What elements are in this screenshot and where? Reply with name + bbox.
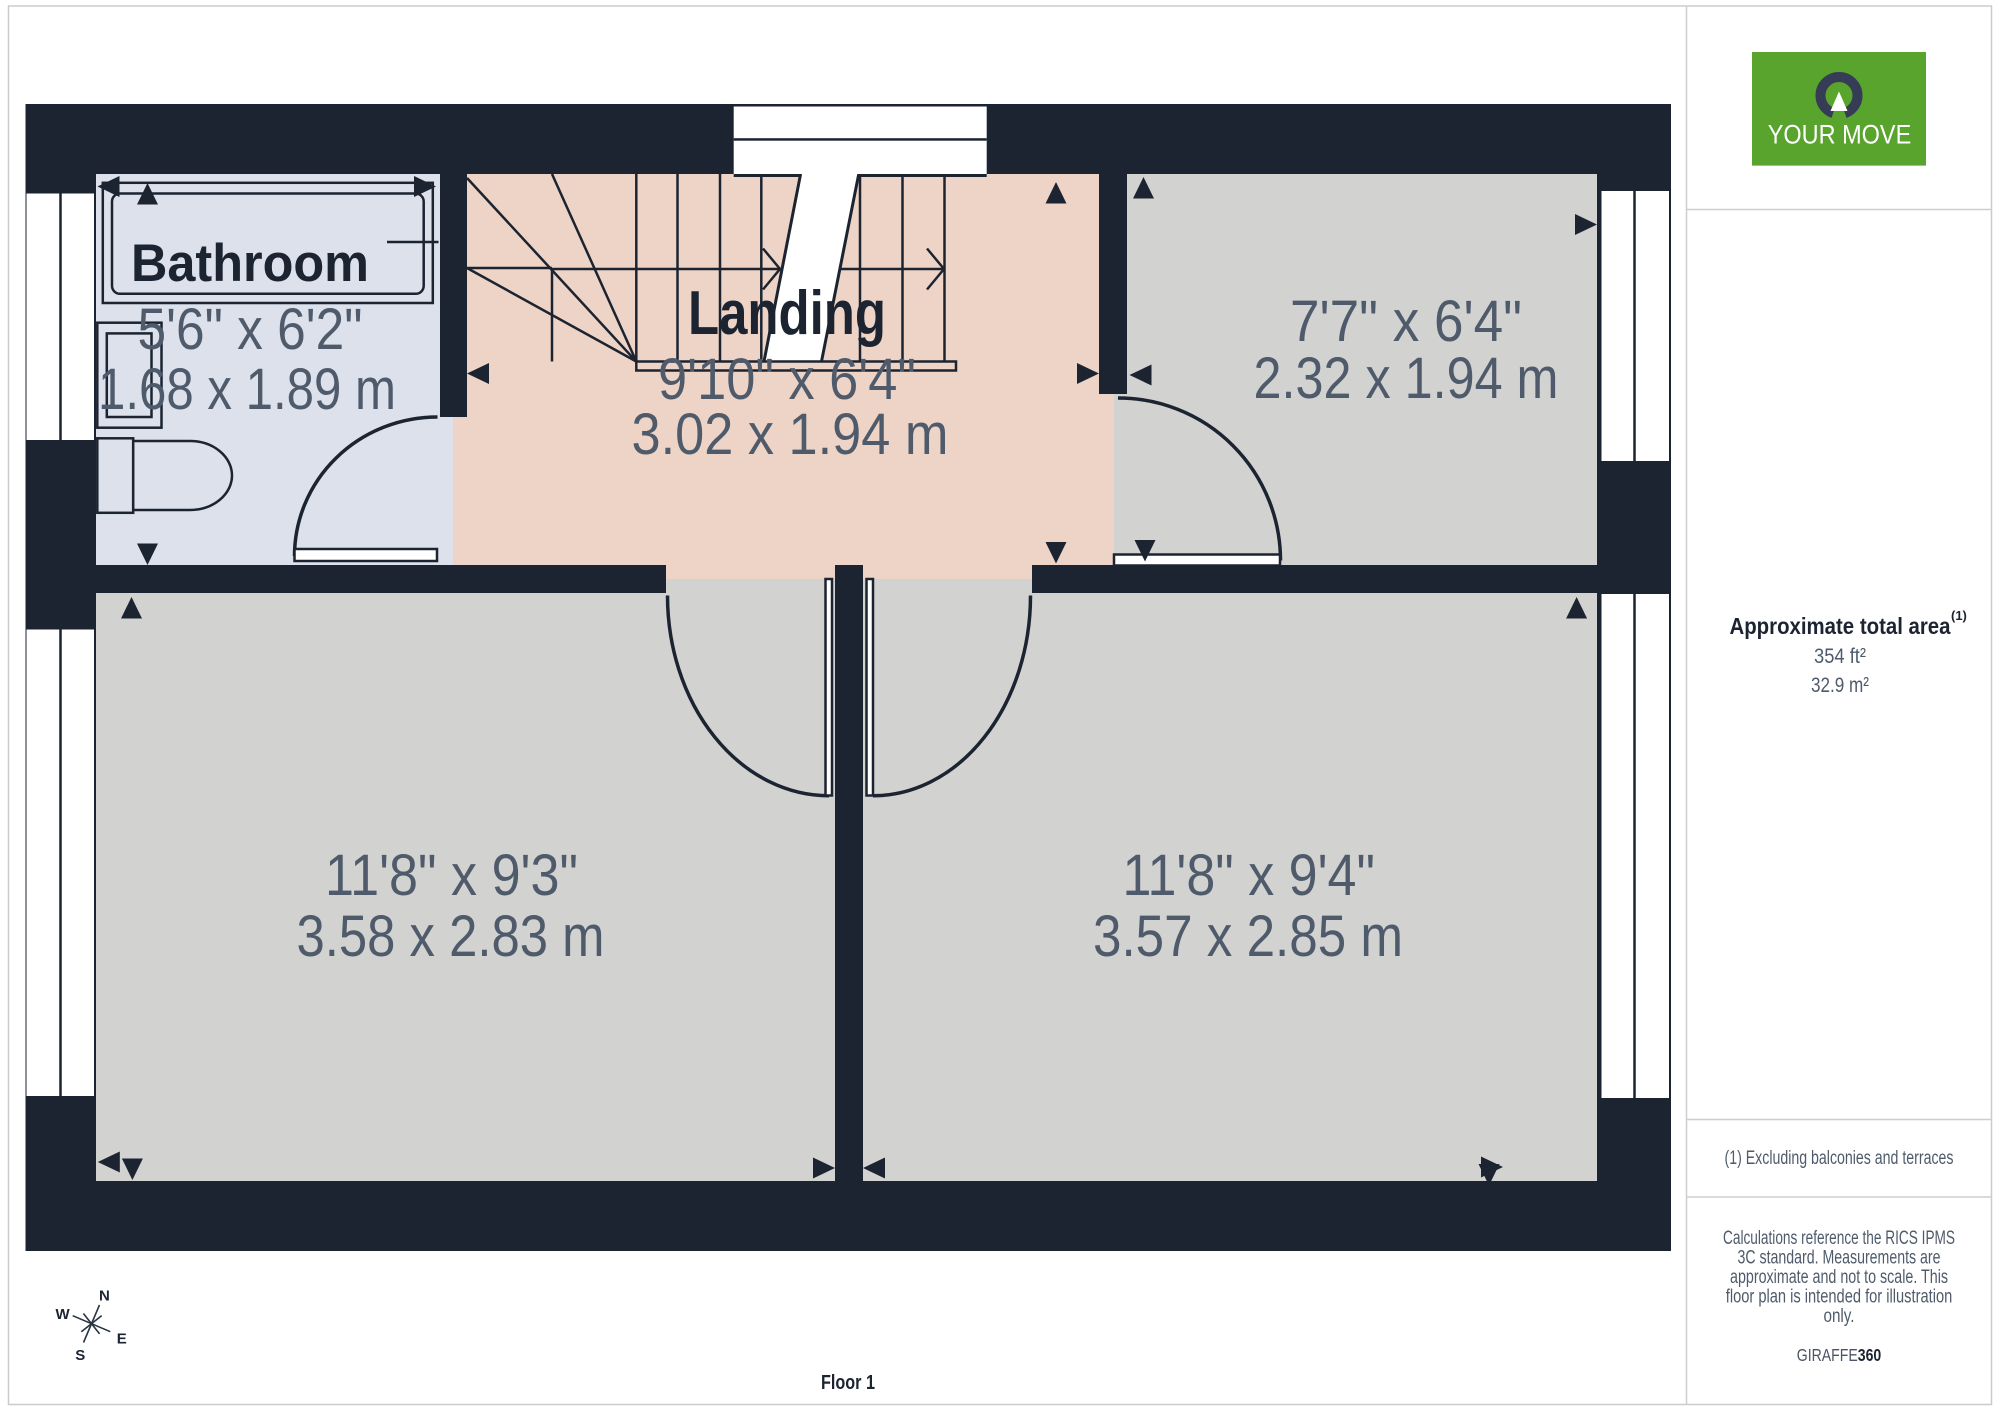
svg-text:only.: only. (1824, 1306, 1855, 1327)
svg-text:11'8" x 9'4": 11'8" x 9'4" (1122, 843, 1375, 908)
svg-text:7'7" x 6'4": 7'7" x 6'4" (1290, 289, 1522, 354)
svg-text:354 ft²: 354 ft² (1814, 645, 1866, 668)
svg-text:(1) Excluding balconies and te: (1) Excluding balconies and terraces (1725, 1148, 1954, 1169)
svg-text:YOUR MOVE: YOUR MOVE (1768, 120, 1912, 150)
svg-text:S: S (75, 1347, 85, 1364)
svg-text:3.58 x 2.83 m: 3.58 x 2.83 m (297, 904, 605, 969)
svg-text:11'8" x 9'3": 11'8" x 9'3" (325, 843, 578, 908)
svg-text:5'6" x 6'2": 5'6" x 6'2" (138, 297, 363, 362)
svg-text:3.02 x 1.94 m: 3.02 x 1.94 m (632, 402, 949, 467)
svg-text:Approximate total area: Approximate total area (1730, 613, 1951, 639)
svg-text:approximate and not to scale.: approximate and not to scale. This (1730, 1267, 1948, 1288)
svg-text:2.32 x 1.94 m: 2.32 x 1.94 m (1254, 346, 1559, 411)
svg-text:floor plan is intended for ill: floor plan is intended for illustration (1726, 1287, 1953, 1308)
svg-text:N: N (99, 1288, 110, 1305)
svg-text:32.9 m²: 32.9 m² (1811, 674, 1869, 697)
svg-text:GIRAFFE360: GIRAFFE360 (1797, 1345, 1882, 1365)
svg-text:(1): (1) (1951, 608, 1967, 623)
svg-text:Calculations reference the RIC: Calculations reference the RICS IPMS (1723, 1228, 1955, 1249)
svg-text:Bathroom: Bathroom (131, 234, 369, 293)
svg-text:1.68 x 1.89 m: 1.68 x 1.89 m (98, 357, 396, 422)
svg-text:3.57 x 2.85 m: 3.57 x 2.85 m (1093, 904, 1403, 969)
svg-text:W: W (56, 1306, 71, 1323)
svg-text:Floor 1: Floor 1 (821, 1372, 875, 1394)
svg-text:3C standard. Measurements are: 3C standard. Measurements are (1738, 1248, 1941, 1269)
svg-text:Landing: Landing (688, 279, 886, 348)
svg-text:E: E (117, 1331, 127, 1348)
